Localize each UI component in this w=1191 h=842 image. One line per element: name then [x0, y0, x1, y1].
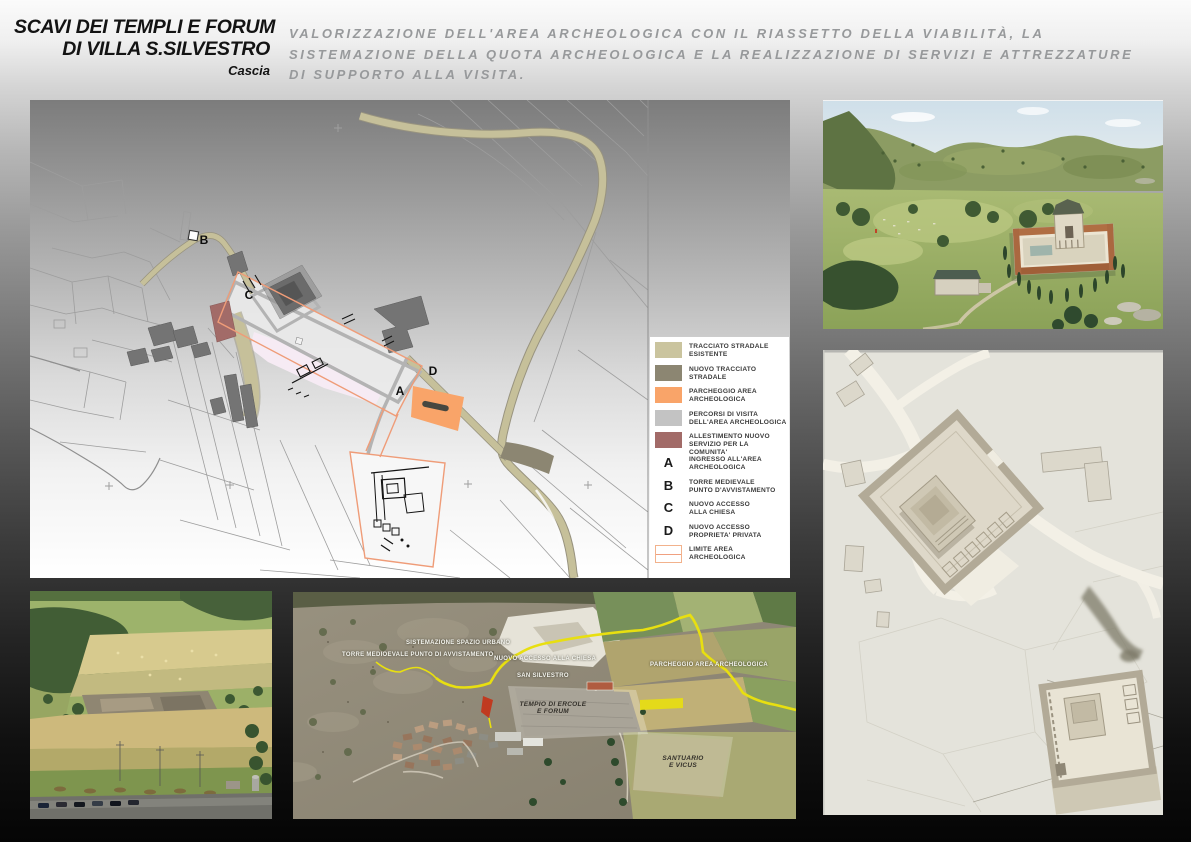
label-line: E VICUS [669, 762, 697, 769]
legend-label: ARCHEOLOGICA [689, 396, 757, 404]
excavation-fields-photo [30, 591, 272, 819]
masterplan-panel [823, 350, 1163, 815]
community-service-swatch [655, 432, 682, 448]
legend-letter-d: D [655, 523, 682, 538]
legend-label: PROPRIETA' PRIVATA [689, 532, 761, 540]
legend-label: PERCORSI DI VISITA [689, 411, 786, 419]
legend-item-area-limit: LIMITE AREAARCHEOLOGICA [655, 545, 787, 568]
description-line: SISTEMAZIONE DELLA QUOTA ARCHEOLOGICA E … [289, 45, 1179, 66]
legend-label: INGRESSO ALL'AREA [689, 456, 762, 464]
page-title-line1: SCAVI DEI TEMPLI E FORUM [14, 16, 270, 38]
legend-label: DELL'AREA ARCHEOLOGICA [689, 419, 786, 427]
legend-label: PUNTO D'AVVISTAMENTO [689, 487, 775, 495]
legend-label: NUOVO TRACCIATO [689, 366, 756, 374]
map-marker-b: B [200, 233, 209, 247]
label-nuovo-accesso-chiesa: NUOVO ACCESSO ALLA CHIESA [494, 656, 596, 663]
project-description: VALORIZZAZIONE DELL'AREA ARCHEOLOGICA CO… [289, 24, 1179, 86]
legend-letter-b: B [655, 478, 682, 493]
label-line: E FORUM [537, 708, 569, 715]
label-sistemazione-spazio-urbano: SISTEMAZIONE SPAZIO URBANO [406, 640, 510, 647]
map-marker-d: D [429, 364, 438, 378]
legend-label: PARCHEGGIO AREA [689, 388, 757, 396]
legend-label: ESISTENTE [689, 351, 769, 359]
page-title-line2: DI VILLA S.SILVESTRO [14, 38, 270, 60]
existing-road-swatch [655, 342, 682, 358]
page-subtitle: Cascia [14, 63, 270, 78]
legend-label: ALLESTIMENTO NUOVO [689, 433, 787, 441]
valley-rendering-photo [823, 100, 1163, 329]
legend-item-parking: PARCHEGGIO AREAARCHEOLOGICA [655, 387, 787, 410]
label-tempio-ercole-forum: TEMPIO DI ERCOLEE FORUM [519, 701, 587, 715]
description-line: DI SUPPORTO ALLA VISITA. [289, 65, 1179, 86]
label-parcheggio: PARCHEGGIO AREA ARCHEOLOGICA [650, 662, 768, 669]
annotated-aerial-photo: SISTEMAZIONE SPAZIO URBANO TORRE MEDIOEV… [293, 592, 796, 819]
legend-label: ARCHEOLOGICA [689, 554, 746, 562]
parking-swatch [655, 387, 682, 403]
legend-item-visit-paths: PERCORSI DI VISITADELL'AREA ARCHEOLOGICA [655, 410, 787, 433]
legend-label: TORRE MEDIEVALE [689, 479, 775, 487]
new-road-swatch [655, 365, 682, 381]
legend-label: LIMITE AREA [689, 546, 746, 554]
legend-label: ARCHEOLOGICA [689, 464, 762, 472]
label-torre-medioevale: TORRE MEDIOEVALE PUNTO DI AVVISTAMENTO [342, 652, 494, 659]
map-marker-a: A [396, 384, 405, 398]
visit-paths-swatch [655, 410, 682, 426]
presentation-board: SCAVI DEI TEMPLI E FORUM DI VILLA S.SILV… [0, 0, 1191, 842]
label-santuario-vicus: SANTUARIOE VICUS [655, 755, 711, 769]
legend-item-community-service: ALLESTIMENTO NUOVOSERVIZIO PER LA COMUNI… [655, 432, 787, 455]
label-line: TEMPIO DI ERCOLE [520, 701, 587, 708]
legend-item-new-road: NUOVO TRACCIATOSTRADALE [655, 365, 787, 388]
title-block: SCAVI DEI TEMPLI E FORUM DI VILLA S.SILV… [14, 16, 270, 78]
legend-item-a: A INGRESSO ALL'AREAARCHEOLOGICA [655, 455, 787, 478]
legend-letter-c: C [655, 500, 682, 515]
masterplan-drawing [823, 350, 1163, 815]
label-line: SANTUARIO [662, 755, 703, 762]
legend-item-existing-road: TRACCIATO STRADALEESISTENTE [655, 342, 787, 365]
legend-item-d: D NUOVO ACCESSOPROPRIETA' PRIVATA [655, 523, 787, 546]
valley-rendering [823, 101, 1163, 329]
legend-label: NUOVO ACCESSO [689, 501, 750, 509]
main-map-panel: A B C D TRACCIATO STRADALEESISTENTE NUOV… [30, 100, 790, 578]
plan-sanctuary-complex [1038, 673, 1161, 815]
fields-aerial-view [30, 591, 272, 819]
legend-label: TRACCIATO STRADALE [689, 343, 769, 351]
area-limit-swatch [655, 545, 682, 563]
legend: TRACCIATO STRADALEESISTENTE NUOVO TRACCI… [650, 337, 789, 578]
label-san-silvestro: SAN SILVESTRO [517, 673, 569, 680]
description-line: VALORIZZAZIONE DELL'AREA ARCHEOLOGICA CO… [289, 24, 1179, 45]
map-marker-c: C [245, 288, 254, 302]
legend-item-b: B TORRE MEDIEVALEPUNTO D'AVVISTAMENTO [655, 478, 787, 501]
medieval-tower [188, 230, 198, 240]
legend-item-c: C NUOVO ACCESSOALLA CHIESA [655, 500, 787, 523]
legend-label: STRADALE [689, 374, 756, 382]
legend-label: ALLA CHIESA [689, 509, 750, 517]
legend-label: NUOVO ACCESSO [689, 524, 761, 532]
legend-letter-a: A [655, 455, 682, 470]
